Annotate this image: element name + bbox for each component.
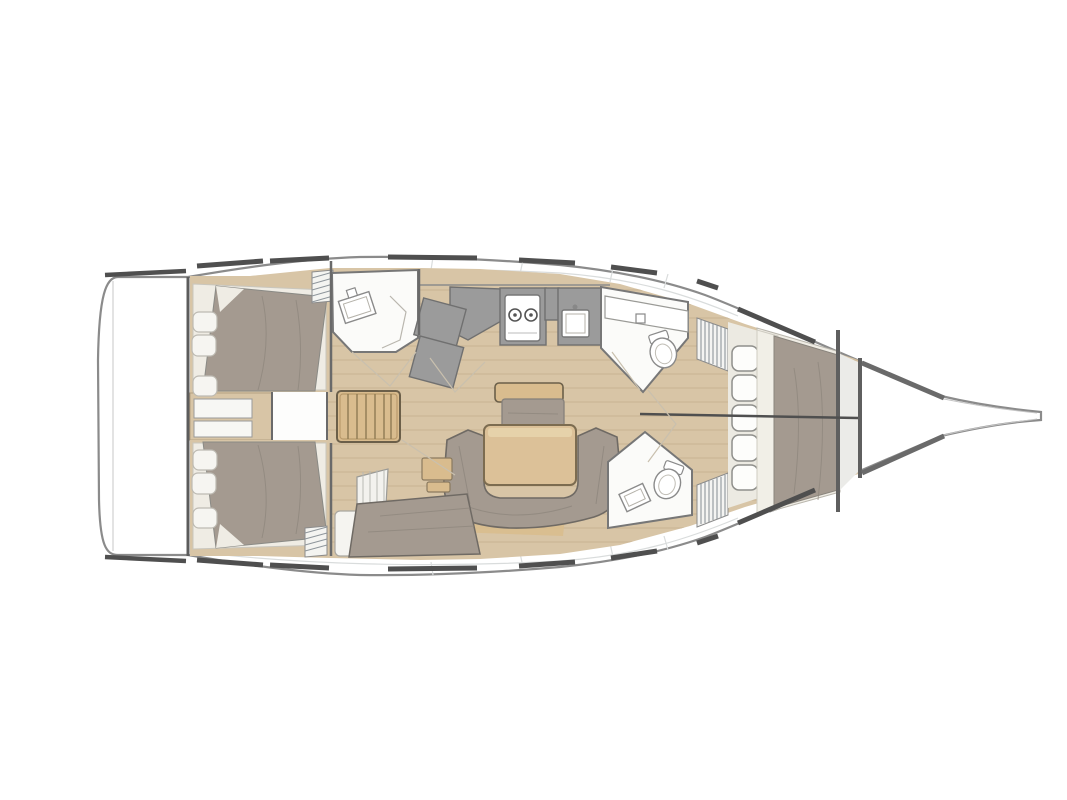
port-aft-head (332, 270, 418, 352)
storage-cubby (732, 405, 758, 431)
pillow (192, 335, 216, 356)
storage-cubby (732, 346, 758, 371)
storage-cubby (732, 465, 758, 490)
companionway-steps (337, 391, 400, 442)
pillow (193, 508, 217, 528)
yacht-floorplan (0, 0, 1067, 800)
pillows (192, 450, 217, 528)
pillow (193, 450, 217, 470)
floorplan-svg (0, 0, 1067, 800)
centerline-bench (495, 383, 564, 429)
chaise-surface (349, 494, 480, 557)
pillows (192, 312, 217, 396)
engine-box (272, 390, 327, 443)
deck-hatch-starboard (305, 526, 327, 557)
pillow (193, 376, 217, 396)
vberth-duvet (774, 336, 838, 508)
storage-cubbies (732, 346, 758, 490)
stern-center-lockers (190, 390, 327, 443)
faucet-icon (636, 314, 645, 323)
saloon-table (484, 425, 576, 485)
pillow (193, 312, 217, 332)
forepeak-shelf (840, 354, 858, 490)
pillow (192, 473, 216, 494)
port-aft-cabin (190, 276, 330, 396)
stove-icon (505, 295, 540, 341)
storage-cubby (732, 375, 758, 401)
galley-sink-icon (562, 305, 589, 338)
storage-cubby (732, 435, 758, 461)
